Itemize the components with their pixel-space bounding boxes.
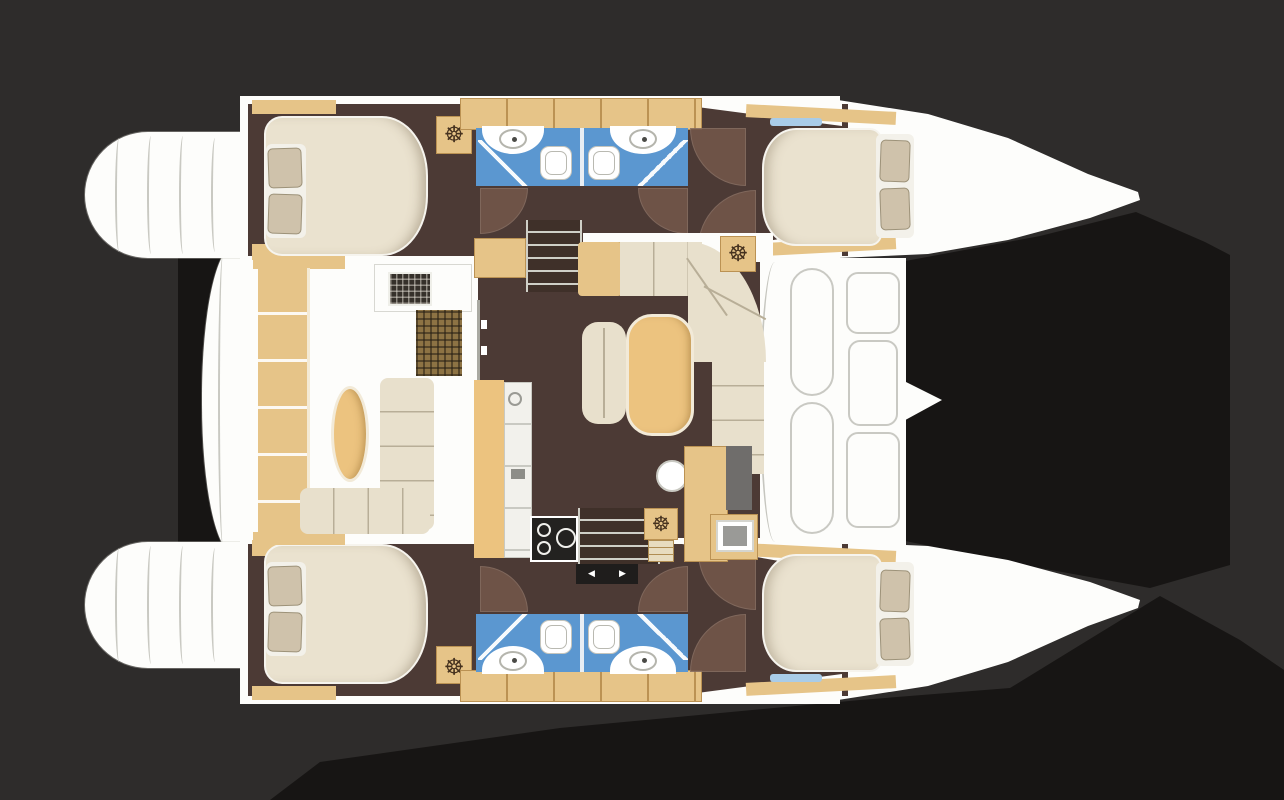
shower-stall (478, 140, 530, 186)
saloon-table (626, 314, 694, 436)
stern-pod (85, 542, 265, 668)
stove (530, 516, 578, 562)
stern-step (147, 136, 155, 254)
fridge-vent (511, 469, 525, 479)
nav-gray-panel (726, 446, 752, 510)
nav-helm-icon-box: ☸ (644, 508, 678, 540)
cockpit-table (331, 386, 369, 482)
hull-window (770, 118, 822, 126)
chartplotter-screen (716, 520, 754, 552)
shower-stall (634, 614, 688, 660)
stairs-to-port-hull (526, 220, 582, 292)
pillow (879, 569, 910, 612)
galley-faucet-icon (508, 392, 522, 406)
pillow (879, 617, 910, 660)
trampoline-panel (790, 268, 834, 396)
shower-stall (634, 140, 688, 186)
trampoline-panel (790, 402, 834, 534)
toilet-seat (593, 625, 615, 649)
door-handle (481, 346, 487, 355)
screen-inner (723, 526, 747, 546)
shower-stall (478, 614, 530, 660)
aft-cabin-trim (252, 100, 336, 114)
stern-step (211, 138, 219, 252)
arrow-left-icon: ◀ (588, 570, 595, 579)
pillow (267, 565, 302, 606)
stove-burner (556, 528, 576, 548)
bathroom-divider (580, 614, 584, 672)
ship-wheel-icon: ☸ (728, 243, 749, 266)
stern-step (179, 136, 187, 254)
toilet-seat (593, 151, 615, 175)
fwd-cabin-bed (762, 128, 882, 246)
settee-end-pad (578, 242, 622, 296)
saloon-wheel-icon-box: ☸ (720, 236, 756, 272)
transom-step-line (218, 254, 228, 546)
pillow (879, 139, 910, 182)
windshield-line (760, 262, 790, 542)
saloon-bench-seat (582, 322, 626, 424)
stern-step (211, 548, 219, 662)
stern-pod (85, 132, 265, 258)
door-handle (481, 320, 487, 329)
pillow (267, 147, 302, 188)
stove-burner (537, 541, 551, 555)
toilet-seat (545, 151, 567, 175)
ship-wheel-icon: ☸ (652, 514, 671, 535)
nav-seat (648, 540, 674, 562)
bench-seam (603, 328, 605, 418)
toilet (540, 146, 572, 180)
fwd-cabin-bed (762, 554, 882, 672)
trampoline-panel (846, 272, 900, 334)
pillow (879, 187, 910, 230)
trampoline-panel (848, 340, 898, 426)
catamaran-floorplan: ☸ (0, 0, 1284, 800)
sliding-hatch-arrows: ◀ ▶ (576, 564, 638, 584)
trampoline-panel (846, 432, 900, 528)
pillow (267, 193, 302, 234)
galley-counter (474, 380, 504, 558)
grill-icon (388, 272, 432, 306)
arrow-right-icon: ▶ (619, 570, 626, 579)
galley-fridge-column (504, 382, 532, 558)
stern-step (179, 546, 187, 664)
cockpit-bench-side (300, 488, 430, 534)
toilet (588, 620, 620, 654)
stern-step (115, 548, 123, 662)
stern-step (115, 138, 123, 252)
galley-cabinet (474, 238, 526, 278)
cockpit-hatch-mat (416, 310, 462, 376)
aft-cabin-trim (252, 686, 336, 700)
bathroom-cabinets (460, 670, 702, 702)
pillow (267, 611, 302, 652)
toilet (540, 620, 572, 654)
stove-burner (537, 523, 551, 537)
stern-step (147, 546, 155, 664)
toilet (588, 146, 620, 180)
bathroom-divider (580, 128, 584, 186)
hull-window (770, 674, 822, 682)
toilet-seat (545, 625, 567, 649)
